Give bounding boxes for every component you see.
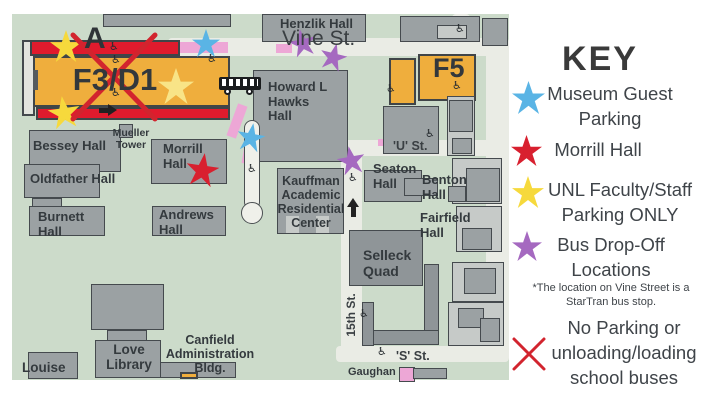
key-museum-guest-label: Museum Guest Parking	[544, 82, 676, 132]
map-key-panel: KEY Museum Guest Parking Morrill Hall UN…	[510, 0, 720, 405]
kauffman-label: Kauffman Academic Residential Center	[272, 174, 350, 230]
accessible-parking-icon: ♿	[386, 83, 396, 94]
benton-hall-label: Benton Hall	[422, 173, 470, 202]
mueller-tower-label: Mueller Tower	[106, 128, 156, 152]
key-yellow-star-icon	[512, 176, 544, 208]
henzlik-hall-label: Henzlik Hall	[280, 17, 353, 32]
key-bus-dropoff-label: Bus Drop-Off Locations	[546, 233, 676, 283]
morrill-hall-label: Morrill Hall	[163, 142, 213, 171]
fifteenth-street-label: 15th St.	[344, 275, 358, 355]
building-top-partial	[103, 14, 231, 27]
accessible-parking-icon: ♿	[247, 163, 257, 174]
accessible-parking-icon: ♿	[455, 23, 465, 34]
selleck-quad-label: Selleck Quad	[363, 248, 423, 279]
building-east-gray	[449, 100, 473, 132]
zone-a-label: A	[84, 22, 106, 56]
key-blue-star-icon	[512, 81, 545, 114]
key-faculty-parking-label: UNL Faculty/Staff Parking ONLY	[544, 178, 696, 228]
seaton-hall-label: Seaton Hall	[373, 162, 423, 191]
key-bus-dropoff-note: *The location on Vine Street is a StarTr…	[522, 281, 700, 310]
andrews-hall-label: Andrews Hall	[159, 208, 219, 237]
key-purple-star-icon	[512, 231, 542, 261]
lot-entrance-mark	[33, 70, 38, 90]
burnett-hall-label: Burnett Hall	[38, 210, 92, 239]
key-no-parking-label: No Parking or unloading/loading school b…	[546, 316, 702, 391]
howard-hawks-label: Howard L Hawks Hall	[268, 80, 334, 124]
accessible-parking-icon: ♿	[359, 308, 369, 319]
love-library-label: Love Library	[102, 342, 156, 372]
building-top-corner	[482, 18, 508, 46]
key-no-parking-x-icon	[510, 334, 548, 374]
lot-f3d1-label: F3/D1	[45, 62, 185, 98]
accessible-parking-icon: ♿	[425, 128, 435, 139]
key-title: KEY	[520, 40, 680, 79]
key-morrill-hall-label: Morrill Hall	[543, 138, 653, 163]
building-love-library-north	[91, 284, 164, 330]
accessible-parking-icon: ♿	[207, 53, 217, 64]
campus-parking-map-page: ♿ ♿ ♿ ♿ ♿ ♿ ♿ ♿ ♿ ♿ ♿ ♿ A F3/D1 F5 Vine …	[0, 0, 720, 405]
canfield-label: Canfield Administration Bldg.	[158, 333, 262, 375]
gaughan-label: Gaughan	[348, 366, 396, 378]
building-gaughan-area	[413, 368, 447, 379]
building-east-small	[452, 138, 472, 154]
s-street-label: 'S' St.	[396, 349, 430, 363]
fairfield-hall-label: Fairfield Hall	[420, 211, 474, 240]
bessey-hall-label: Bessey Hall	[33, 139, 106, 154]
lot-f5-label: F5	[433, 53, 465, 84]
u-street-label: 'U' St.	[393, 139, 427, 153]
oldfather-hall-label: Oldfather Hall	[30, 172, 115, 187]
accessible-parking-icon: ♿	[377, 346, 387, 357]
building-se-gray1	[464, 268, 496, 294]
louise-pound-label: Louise	[22, 360, 66, 375]
bus-icon	[219, 77, 263, 99]
building-benton	[466, 168, 500, 202]
key-red-star-icon	[511, 135, 542, 166]
walkway-bulb	[241, 202, 263, 224]
building-se-gray3	[480, 318, 500, 342]
